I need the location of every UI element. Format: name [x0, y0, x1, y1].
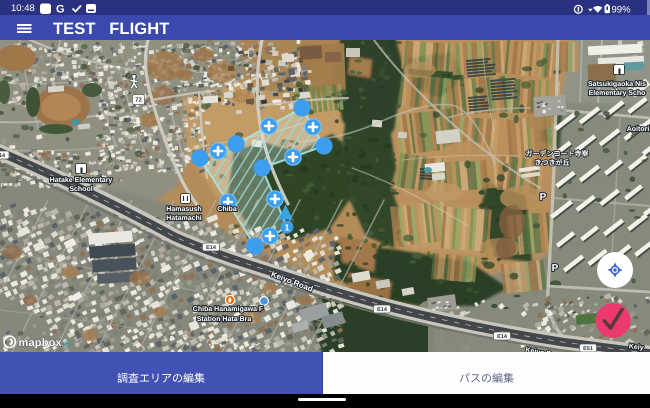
svg-text:mapbox: mapbox	[19, 337, 63, 349]
svg-text:School: School	[69, 185, 92, 193]
svg-text:72: 72	[135, 97, 142, 104]
svg-text:E14: E14	[497, 334, 508, 340]
svg-text:G: G	[56, 4, 65, 16]
svg-text:Chiba Hanamigawa F: Chiba Hanamigawa F	[193, 305, 264, 313]
svg-text:Hatake Elementary: Hatake Elementary	[50, 176, 113, 184]
svg-text:Hamasush: Hamasush	[166, 205, 201, 213]
svg-text:Satsukigaoka Nis: Satsukigaoka Nis	[588, 80, 646, 88]
svg-text:1: 1	[284, 222, 289, 232]
svg-text:Elementary Scho: Elementary Scho	[589, 89, 646, 97]
svg-text:Aoitori: Aoitori	[627, 125, 650, 133]
svg-text:Chiba: Chiba	[217, 205, 237, 213]
svg-text:ガーデンコート寺宰: ガーデンコート寺宰	[526, 149, 589, 158]
svg-text:E14: E14	[377, 307, 388, 313]
svg-text:99%: 99%	[612, 5, 632, 15]
svg-text:E14: E14	[206, 245, 217, 251]
svg-text:Station Hata Bra: Station Hata Bra	[197, 315, 252, 323]
svg-text:P: P	[540, 192, 547, 203]
svg-text:きつきが丘: きつきが丘	[535, 158, 570, 167]
svg-text:Hatamachi: Hatamachi	[166, 214, 201, 222]
svg-text:P: P	[552, 263, 559, 274]
